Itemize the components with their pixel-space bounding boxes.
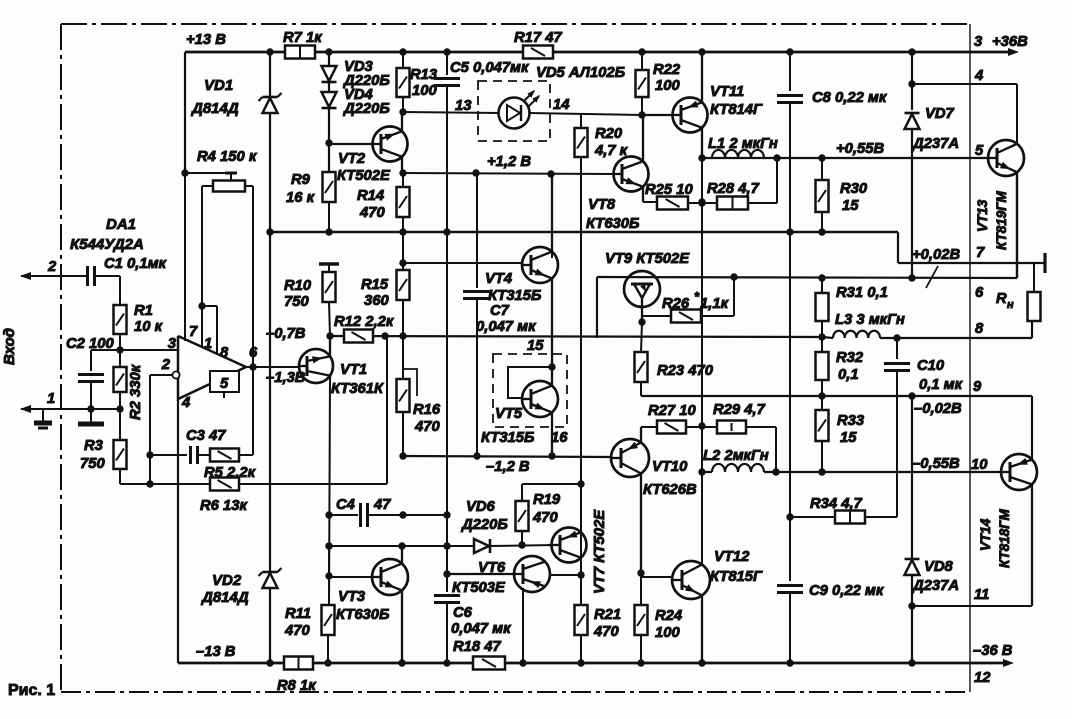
- svg-text:R3: R3: [84, 438, 104, 454]
- svg-text:Д220Б: Д220Б: [342, 101, 390, 117]
- svg-text:1,1к: 1,1к: [700, 296, 730, 312]
- svg-text:15: 15: [842, 198, 859, 214]
- svg-text:2: 2: [161, 357, 171, 373]
- svg-text:750: 750: [80, 456, 105, 472]
- svg-text:13: 13: [455, 98, 472, 114]
- svg-text:VD2: VD2: [212, 572, 242, 589]
- svg-text:н: н: [1007, 299, 1014, 311]
- svg-text:R19: R19: [533, 492, 561, 508]
- svg-text:КТ630Б: КТ630Б: [336, 607, 389, 623]
- svg-text:470: 470: [593, 624, 619, 640]
- svg-text:16 к: 16 к: [286, 190, 316, 206]
- svg-text:КТ502Е: КТ502Е: [337, 168, 391, 184]
- svg-text:R22: R22: [653, 62, 681, 78]
- svg-text:C7: C7: [490, 303, 510, 319]
- svg-text:–1,3В: –1,3В: [266, 370, 306, 386]
- svg-text:R24: R24: [655, 608, 682, 624]
- svg-text:C3 47: C3 47: [186, 428, 226, 444]
- svg-text:C10: C10: [917, 358, 945, 374]
- svg-text:L2 2мкГн: L2 2мкГн: [703, 448, 769, 464]
- svg-text:КТ814Г: КТ814Г: [710, 102, 763, 118]
- svg-text:Вход: Вход: [1, 328, 18, 365]
- svg-text:Д237А: Д237А: [911, 136, 959, 152]
- svg-text:Д237А: Д237А: [911, 578, 959, 594]
- svg-text:47: 47: [373, 497, 391, 513]
- svg-text:3: 3: [168, 336, 177, 352]
- svg-text:VT10: VT10: [652, 459, 688, 475]
- svg-text:9: 9: [973, 379, 982, 395]
- svg-text:+36В: +36В: [992, 34, 1028, 50]
- svg-text:–13 В: –13 В: [196, 644, 236, 660]
- svg-text:R17 47: R17 47: [514, 30, 562, 46]
- svg-text:C4: C4: [336, 497, 355, 513]
- svg-text:7: 7: [976, 245, 985, 261]
- svg-text:360: 360: [364, 293, 389, 309]
- svg-text:VD8: VD8: [924, 559, 954, 575]
- svg-text:К544УД2А: К544УД2А: [70, 236, 144, 253]
- svg-text:L1 2 мкГн: L1 2 мкГн: [708, 136, 778, 152]
- svg-text:–1,2 В: –1,2 В: [486, 459, 530, 475]
- svg-text:C8 0,22 мк: C8 0,22 мк: [812, 90, 888, 106]
- svg-text:VT5: VT5: [495, 406, 523, 422]
- svg-text:R21: R21: [594, 607, 621, 623]
- svg-text:0,047 мк: 0,047 мк: [451, 621, 512, 637]
- svg-text:VT11: VT11: [710, 84, 744, 100]
- svg-text:R18 47: R18 47: [453, 639, 501, 655]
- svg-text:1: 1: [47, 391, 55, 407]
- svg-text:КТ315Б: КТ315Б: [481, 430, 534, 446]
- svg-text:VT12: VT12: [714, 549, 750, 565]
- svg-text:L3 3 мкГн: L3 3 мкГн: [835, 312, 905, 328]
- svg-text:VD5 АЛ102Б: VD5 АЛ102Б: [536, 65, 625, 81]
- svg-text:VD7: VD7: [925, 106, 955, 122]
- svg-text:6: 6: [975, 285, 984, 301]
- svg-text:4: 4: [181, 395, 190, 411]
- svg-text:КТ819ГМ: КТ819ГМ: [994, 190, 1009, 250]
- svg-text:R31 0,1: R31 0,1: [836, 285, 888, 301]
- svg-text:–0,02В: –0,02В: [914, 401, 962, 417]
- svg-text:DA1: DA1: [106, 216, 136, 233]
- svg-text:VD6: VD6: [466, 499, 496, 515]
- svg-text:+13 В: +13 В: [186, 32, 226, 48]
- svg-text:R4 150 к: R4 150 к: [197, 149, 258, 165]
- svg-text:R33: R33: [837, 413, 865, 429]
- svg-text:C9 0,22 мк: C9 0,22 мк: [809, 583, 885, 599]
- svg-text:КТ315Б: КТ315Б: [488, 288, 541, 304]
- svg-text:КТ503Е: КТ503Е: [452, 580, 506, 596]
- svg-text:C5 0,047мк: C5 0,047мк: [450, 60, 530, 76]
- svg-text:R25 10: R25 10: [645, 182, 693, 198]
- svg-text:R7 1к: R7 1к: [283, 30, 323, 46]
- svg-text:470: 470: [284, 623, 310, 639]
- svg-text:C2 100: C2 100: [66, 336, 114, 352]
- svg-text:VT13: VT13: [975, 199, 990, 232]
- svg-text:100: 100: [655, 78, 680, 94]
- svg-text:КТ818ГМ: КТ818ГМ: [997, 508, 1012, 568]
- svg-text:15: 15: [527, 338, 544, 354]
- svg-text:VT7 КТ502Е: VT7 КТ502Е: [592, 509, 608, 594]
- svg-text:КТ361К: КТ361К: [331, 381, 384, 397]
- svg-text:R34 4,7: R34 4,7: [810, 496, 863, 512]
- svg-text:R2 330к: R2 330к: [128, 363, 144, 420]
- svg-text:–0,55В: –0,55В: [912, 456, 960, 472]
- svg-text:VT2: VT2: [338, 151, 366, 167]
- svg-text:VT14: VT14: [978, 518, 993, 551]
- svg-text:11: 11: [974, 587, 989, 603]
- svg-text:4: 4: [974, 68, 983, 84]
- svg-text:C6: C6: [453, 605, 473, 621]
- svg-text:12: 12: [974, 670, 991, 686]
- svg-text:+1,2 В: +1,2 В: [487, 154, 531, 170]
- svg-text:7: 7: [189, 324, 198, 340]
- svg-text:VT1: VT1: [340, 362, 367, 378]
- svg-text:14: 14: [553, 97, 569, 113]
- svg-text:КТ630Б: КТ630Б: [586, 216, 639, 232]
- svg-text:+0,02В: +0,02В: [912, 247, 960, 263]
- svg-text:0,1 мк: 0,1 мк: [919, 377, 964, 393]
- svg-text:Д814Д: Д814Д: [190, 100, 239, 117]
- svg-text:R29 4,7: R29 4,7: [713, 402, 766, 418]
- svg-text:2: 2: [47, 259, 57, 275]
- svg-text:470: 470: [532, 510, 558, 526]
- svg-text:10 к: 10 к: [134, 319, 164, 335]
- svg-text:4,7 к: 4,7 к: [594, 143, 629, 159]
- svg-text:R16: R16: [413, 402, 441, 418]
- svg-text:Рис. 1: Рис. 1: [8, 682, 55, 699]
- svg-text:750: 750: [284, 294, 309, 310]
- svg-text:R15: R15: [361, 277, 389, 293]
- svg-text:Д814Д: Д814Д: [200, 589, 249, 606]
- svg-text:3: 3: [974, 34, 983, 50]
- svg-text:R11: R11: [285, 606, 311, 622]
- svg-text:R14: R14: [357, 188, 384, 204]
- svg-text:0,047 мк: 0,047 мк: [476, 319, 537, 335]
- svg-text:100: 100: [655, 625, 680, 641]
- svg-text:10: 10: [971, 457, 988, 473]
- svg-text:R1: R1: [134, 303, 153, 319]
- svg-text:R: R: [996, 291, 1007, 307]
- svg-text:8: 8: [220, 345, 229, 361]
- svg-text:–36 В: –36 В: [973, 643, 1013, 659]
- svg-text:5: 5: [975, 143, 984, 159]
- svg-text:R13: R13: [410, 67, 438, 83]
- svg-text:R20: R20: [595, 126, 623, 142]
- svg-text:R9: R9: [291, 172, 311, 188]
- svg-text:R8 1к: R8 1к: [277, 678, 317, 694]
- svg-text:VT6: VT6: [478, 560, 506, 576]
- svg-text:+0,55В: +0,55В: [836, 141, 884, 157]
- svg-text:5: 5: [220, 376, 229, 392]
- svg-text:R6 13к: R6 13к: [200, 498, 248, 514]
- svg-text:15: 15: [840, 430, 857, 446]
- svg-text:0,1: 0,1: [838, 367, 859, 383]
- svg-text:VD1: VD1: [204, 77, 233, 94]
- svg-text:R10: R10: [284, 278, 312, 294]
- svg-text:VT3: VT3: [338, 589, 366, 605]
- svg-text:1: 1: [204, 336, 212, 352]
- svg-text:–0,7В: –0,7В: [266, 326, 306, 342]
- svg-text:R27 10: R27 10: [648, 403, 696, 419]
- svg-text:Д220Б: Д220Б: [460, 517, 508, 533]
- svg-text:C1 0,1мк: C1 0,1мк: [104, 256, 168, 272]
- svg-text:КТ626В: КТ626В: [643, 482, 697, 498]
- svg-text:100: 100: [412, 83, 437, 99]
- svg-text:470: 470: [414, 419, 440, 435]
- svg-text:R23 470: R23 470: [657, 363, 714, 379]
- svg-text:16: 16: [551, 430, 568, 446]
- svg-text:VT8: VT8: [588, 197, 616, 213]
- svg-text:R12 2,2к: R12 2,2к: [334, 314, 395, 330]
- svg-text:КТ815Г: КТ815Г: [710, 569, 763, 585]
- svg-text:470: 470: [359, 205, 385, 221]
- svg-text:R30: R30: [840, 181, 868, 197]
- svg-text:R32: R32: [836, 350, 864, 366]
- svg-text:R26: R26: [662, 296, 690, 312]
- svg-text:8: 8: [975, 321, 984, 337]
- svg-text:VT4: VT4: [485, 271, 512, 287]
- svg-text:VT9 КТ502Е: VT9 КТ502Е: [605, 251, 690, 267]
- svg-text:R28 4,7: R28 4,7: [707, 181, 760, 197]
